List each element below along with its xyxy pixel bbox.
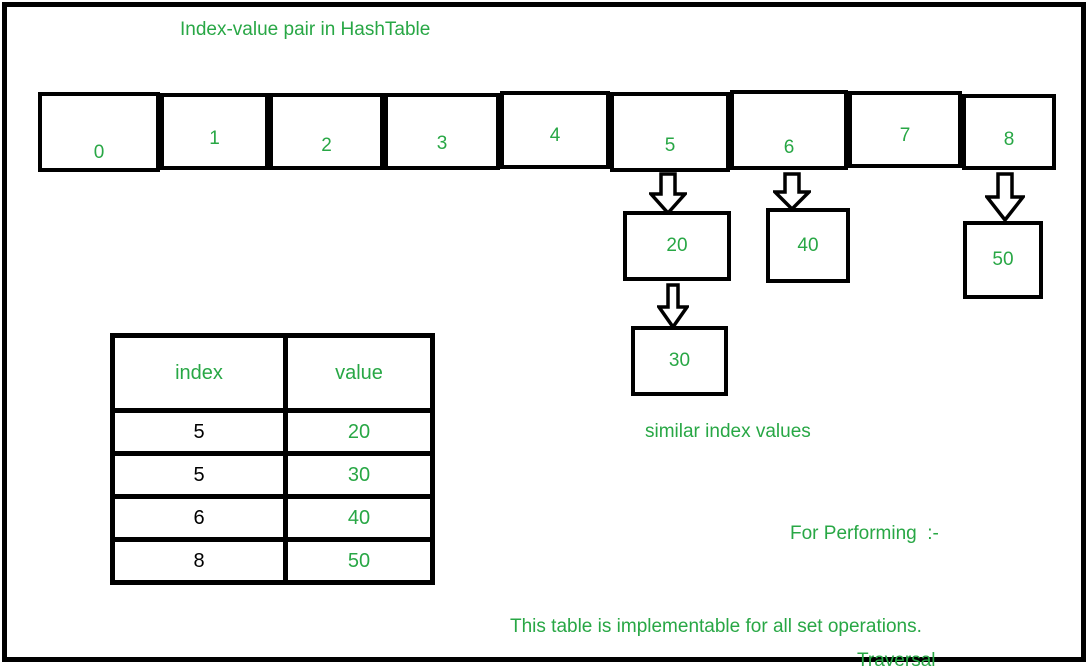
table-cell-value: 20: [286, 411, 433, 454]
table-row: 6 40: [113, 497, 433, 540]
down-arrow-icon: [649, 172, 687, 215]
array-cell-4: 4: [500, 91, 610, 169]
table-cell-index: 8: [113, 540, 286, 583]
index-value-table: index value 5 20 5 30 6 40 8 50: [110, 333, 435, 585]
array-cell-8: 8: [962, 94, 1056, 170]
array-cell-5: 5: [610, 92, 730, 172]
array-cell-2: 2: [269, 93, 384, 170]
node-value-label: 40: [797, 235, 818, 257]
down-arrow-icon: [657, 283, 689, 329]
array-index-label: 3: [437, 133, 448, 166]
table-cell-value: 50: [286, 540, 433, 583]
operation-item: Traversal: [857, 647, 939, 666]
value-node-40: 40: [766, 208, 850, 283]
footer-note: This table is implementable for all set …: [510, 616, 922, 638]
array-cell-7: 7: [848, 91, 962, 168]
table-row: 8 50: [113, 540, 433, 583]
value-node-20: 20: [623, 211, 731, 281]
similar-index-values-label: similar index values: [645, 421, 811, 443]
table-header-index: index: [113, 336, 286, 411]
value-node-30: 30: [631, 326, 728, 396]
down-arrow-icon: [773, 172, 811, 211]
table-cell-value: 30: [286, 454, 433, 497]
array-index-label: 6: [784, 137, 795, 166]
array-index-label: 5: [665, 135, 676, 168]
array-index-label: 7: [900, 125, 911, 164]
array-cell-3: 3: [384, 93, 500, 170]
array-index-label: 4: [550, 125, 561, 165]
array-index-label: 8: [1004, 129, 1015, 166]
table-header-value: value: [286, 336, 433, 411]
table-cell-index: 5: [113, 411, 286, 454]
array-index-label: 1: [209, 128, 220, 166]
array-index-label: 2: [321, 135, 332, 166]
down-arrow-icon: [985, 172, 1025, 222]
value-node-50: 50: [963, 221, 1043, 299]
hashtable-diagram: Index-value pair in HashTable 0 1 2 3 4 …: [0, 0, 1090, 666]
node-value-label: 20: [666, 235, 687, 257]
array-index-label: 0: [94, 142, 105, 168]
array-cell-1: 1: [160, 93, 269, 170]
table-cell-index: 5: [113, 454, 286, 497]
table-cell-value: 40: [286, 497, 433, 540]
table-row: 5 30: [113, 454, 433, 497]
table-cell-index: 6: [113, 497, 286, 540]
for-performing-label: For Performing :-: [790, 523, 939, 545]
node-value-label: 50: [992, 249, 1013, 271]
table-header-row: index value: [113, 336, 433, 411]
node-value-label: 30: [669, 350, 690, 372]
array-cell-0: 0: [38, 92, 160, 172]
array-cell-6: 6: [730, 90, 848, 170]
table-row: 5 20: [113, 411, 433, 454]
diagram-title: Index-value pair in HashTable: [180, 19, 430, 41]
